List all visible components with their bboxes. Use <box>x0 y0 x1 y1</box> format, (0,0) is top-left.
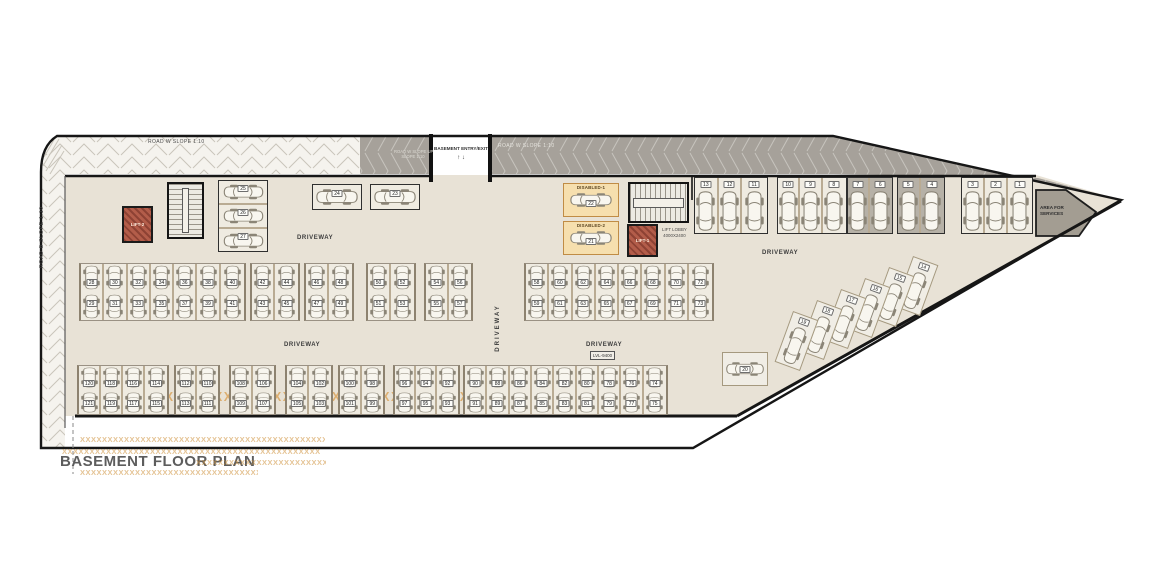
parking-space-number: 66 <box>624 279 635 286</box>
parking-space-number: 87 <box>514 400 525 407</box>
parking-group: 321 <box>961 177 1033 234</box>
parking-space <box>1008 190 1031 232</box>
parking-space: 23 <box>370 184 420 210</box>
disabled-parking-space: DISABLED-221 <box>563 221 619 255</box>
parking-space-number: 92 <box>442 380 453 387</box>
car-icon <box>779 190 798 232</box>
disabled-label: DISABLED-1 <box>564 185 618 190</box>
parking-space-number: 83 <box>559 400 570 407</box>
parking-space-number: 43 <box>257 300 268 307</box>
parking-space <box>800 190 820 232</box>
parking-column: 3 <box>962 178 985 233</box>
parking-space-number: 22 <box>586 200 597 207</box>
parking-space-number: 96 <box>399 380 410 387</box>
parking-space-number: 78 <box>604 380 615 387</box>
parking-space-number: 95 <box>420 400 431 407</box>
parking-space-number: 36 <box>179 279 190 286</box>
parking-space <box>778 190 798 232</box>
parking-space-number: 7 <box>852 181 863 188</box>
parking-space-number: 50 <box>373 279 384 286</box>
parking-group: 58596061626364656667686970717273 <box>524 263 714 321</box>
parking-space-number: 38 <box>203 279 214 286</box>
parking-group: 252627 <box>218 180 268 252</box>
parking-space: 27 <box>219 229 267 253</box>
parking-space-number: 31 <box>109 300 120 307</box>
parking-space: 20 <box>722 352 768 386</box>
driveway-label: DRIVEWAY <box>297 235 333 241</box>
parking-column: 2 <box>985 178 1008 233</box>
parking-column: 7879 <box>599 366 621 414</box>
parking-group: 50515253 <box>366 263 416 321</box>
parking-space: 26 <box>219 205 267 229</box>
parking-space-number: 33 <box>133 300 144 307</box>
parking-space-number: 105 <box>291 400 303 407</box>
parking-space-number: 9 <box>805 181 816 188</box>
car-icon <box>848 190 867 232</box>
parking-group: 2829303132333435363738394041 <box>79 263 246 321</box>
parking-column: 9899 <box>362 366 384 414</box>
driveway-label: DRIVEWAY <box>495 304 501 351</box>
parking-space-number: 1 <box>1014 181 1025 188</box>
car-icon <box>963 190 982 232</box>
parking-column: 7273 <box>689 264 712 320</box>
parking-column: 7677 <box>621 366 643 414</box>
parking-space-number: 65 <box>601 300 612 307</box>
parking-space <box>848 190 868 232</box>
parking-column: 6465 <box>596 264 619 320</box>
car-icon <box>922 190 941 232</box>
parking-column: 6667 <box>619 264 642 320</box>
parking-column: 116117 <box>123 366 145 414</box>
parking-space <box>719 190 741 232</box>
parking-space-number: 86 <box>514 380 525 387</box>
parking-column: 5657 <box>449 264 472 320</box>
parking-column: 7 <box>848 178 870 233</box>
parking-column: 8485 <box>532 366 554 414</box>
parking-space-number: 60 <box>554 279 565 286</box>
parking-space-number: 69 <box>647 300 658 307</box>
parking-column: 12 <box>719 178 743 233</box>
driveway-label: DRIVEWAY <box>586 342 622 348</box>
parking-space <box>742 190 766 232</box>
parking-space-number: 41 <box>227 300 238 307</box>
parking-column: 4243 <box>252 264 275 320</box>
parking-space-number: 97 <box>399 400 410 407</box>
parking-group: 54 <box>897 177 945 234</box>
parking-column: 100101 <box>340 366 362 414</box>
parking-space-number: 76 <box>626 380 637 387</box>
parking-column: 9 <box>800 178 822 233</box>
parking-space-number: 68 <box>647 279 658 286</box>
parking-space-number: 32 <box>133 279 144 286</box>
car-icon <box>801 190 820 232</box>
parking-space-number: 48 <box>335 279 346 286</box>
parking-space <box>823 190 845 232</box>
parking-space <box>985 190 1006 232</box>
parking-group: 76 <box>847 177 893 234</box>
parking-space-number: 59 <box>531 300 542 307</box>
parking-space <box>898 190 919 232</box>
parking-space-number: 88 <box>492 380 503 387</box>
car-icon <box>871 190 890 232</box>
parking-space-number: 47 <box>311 300 322 307</box>
parking-space-number: 2 <box>990 181 1001 188</box>
parking-space-number: 44 <box>281 279 292 286</box>
watermark-row: XXXXXXXXXXXXXXXXXXXXXXXXXXXXXXXXXXXXXXXX… <box>62 447 320 457</box>
parking-space-number: 62 <box>578 279 589 286</box>
parking-group: 1001019899 <box>338 365 385 415</box>
parking-space-number: 24 <box>332 190 343 197</box>
parking-column: 110111 <box>197 366 218 414</box>
parking-column: 8687 <box>510 366 532 414</box>
parking-column: 9495 <box>416 366 437 414</box>
parking-column: 8081 <box>577 366 599 414</box>
parking-space-number: 104 <box>291 380 303 387</box>
parking-space-number: 115 <box>150 400 162 407</box>
parking-space-number: 20 <box>740 366 751 373</box>
parking-space-number: 102 <box>314 380 326 387</box>
parking-space-number: 116 <box>127 380 139 387</box>
parking-space-number: 99 <box>367 400 378 407</box>
parking-space-number: 107 <box>257 400 269 407</box>
car-icon <box>779 324 809 367</box>
parking-column: 3637 <box>174 264 197 320</box>
parking-space-number: 100 <box>344 380 356 387</box>
parking-column: 5051 <box>368 264 391 320</box>
parking-space-number: 94 <box>420 380 431 387</box>
parking-space-number: 8 <box>828 181 839 188</box>
parking-space-number: 55 <box>431 300 442 307</box>
parking-column: 3435 <box>151 264 174 320</box>
parking-space-number: 121 <box>83 400 95 407</box>
parking-space-number: 117 <box>127 400 139 407</box>
parking-space-number: 72 <box>695 279 706 286</box>
parking-space-number: 120 <box>83 380 95 387</box>
parking-column: 11 <box>742 178 766 233</box>
parking-column: 114115 <box>145 366 167 414</box>
parking-space-number: 81 <box>581 400 592 407</box>
parking-space <box>962 190 983 232</box>
parking-group: 42434445 <box>250 263 300 321</box>
parking-column: 6 <box>870 178 892 233</box>
parking-space-number: 37 <box>179 300 190 307</box>
driveway-label: DRIVEWAY <box>284 342 320 348</box>
parking-space-number: 70 <box>671 279 682 286</box>
parking-group: 909188898687848582838081787976777475 <box>463 365 668 415</box>
parking-column: 3233 <box>128 264 151 320</box>
parking-column: 3031 <box>104 264 127 320</box>
parking-space-car <box>776 323 813 369</box>
parking-space-number: 10 <box>783 181 794 188</box>
parking-column: 5253 <box>391 264 414 320</box>
parking-space-number: 101 <box>344 400 356 407</box>
parking-space-number: 26 <box>238 209 249 216</box>
parking-space-number: 58 <box>531 279 542 286</box>
parking-space-number: 46 <box>311 279 322 286</box>
parking-space-number: 34 <box>156 279 167 286</box>
parking-space-number: 89 <box>492 400 503 407</box>
parking-column: 106107 <box>253 366 275 414</box>
car-icon <box>696 190 715 232</box>
parking-space-number: 51 <box>373 300 384 307</box>
parking-column: 4 <box>921 178 944 233</box>
parking-space: 24 <box>312 184 362 210</box>
parking-space-number: 53 <box>397 300 408 307</box>
car-icon <box>986 190 1005 232</box>
parking-group: 1098 <box>777 177 847 234</box>
parking-column: 9091 <box>465 366 487 414</box>
parking-group: 112113110111 <box>174 365 220 415</box>
parking-space: 25 <box>219 181 267 205</box>
parking-space-number: 54 <box>431 279 442 286</box>
parking-space-number: 114 <box>150 380 162 387</box>
parking-column: 108109 <box>231 366 253 414</box>
parking-space-number: 28 <box>86 279 97 286</box>
parking-space-number: 30 <box>109 279 120 286</box>
parking-space-number: 6 <box>875 181 886 188</box>
parking-column: 10 <box>778 178 800 233</box>
parking-space-number: 106 <box>257 380 269 387</box>
parking-space-number: 57 <box>454 300 465 307</box>
parking-column: 4849 <box>329 264 352 320</box>
parking-column: 8283 <box>554 366 576 414</box>
parking-space-number: 63 <box>578 300 589 307</box>
watermark-row: XXXXXXXXXXXXXXXXXXXXXXXXXXXXXXXXXXXXXXXX… <box>196 458 326 468</box>
parking-space-number: 64 <box>601 279 612 286</box>
parking-column: 6869 <box>642 264 665 320</box>
watermark-row: XXXXXXXXXXXXXXXXXXXXXXXXXXXXXXXXXXXXXXXX… <box>80 435 325 445</box>
parking-column: 9697 <box>395 366 416 414</box>
parking-column: 5859 <box>526 264 549 320</box>
car-icon <box>824 190 843 232</box>
parking-column: 13 <box>695 178 719 233</box>
parking-space-number: 61 <box>554 300 565 307</box>
parking-space-number: 5 <box>903 181 914 188</box>
parking-space-number: 73 <box>695 300 706 307</box>
parking-space-number: 12 <box>724 181 735 188</box>
parking-column: 1 <box>1008 178 1031 233</box>
parking-space-number: 75 <box>649 400 660 407</box>
parking-space-number: 39 <box>203 300 214 307</box>
parking-column: 8889 <box>487 366 509 414</box>
parking-space-number: 82 <box>559 380 570 387</box>
parking-space-number: 77 <box>626 400 637 407</box>
parking-layer: 2829303132333435363738394041424344454647… <box>0 0 1164 582</box>
watermark-row: XXXXXXXXXXXXXXXXXXXXXXXXXXXXXXXXXXXXXXXX… <box>80 468 258 478</box>
parking-group: 969794959293 <box>393 365 460 415</box>
parking-space-number: 103 <box>314 400 326 407</box>
parking-space-number: 56 <box>454 279 465 286</box>
parking-space-number: 27 <box>238 233 249 240</box>
parking-column: 7475 <box>644 366 666 414</box>
parking-space-number: 42 <box>257 279 268 286</box>
parking-space-number: 91 <box>470 400 481 407</box>
parking-column: 4041 <box>221 264 244 320</box>
parking-space-number: 80 <box>581 380 592 387</box>
parking-column: 4445 <box>275 264 298 320</box>
parking-group: 120121118119116117114115 <box>77 365 169 415</box>
parking-column: 112113 <box>176 366 197 414</box>
parking-space-number: 23 <box>390 190 401 197</box>
parking-column: 104105 <box>287 366 309 414</box>
parking-column: 5455 <box>426 264 449 320</box>
level-tag: LVL-9400 <box>590 351 615 360</box>
parking-column: 3839 <box>197 264 220 320</box>
parking-space-number: 40 <box>227 279 238 286</box>
parking-space-number: 98 <box>367 380 378 387</box>
parking-group: 54555657 <box>424 263 473 321</box>
parking-space-number: 110 <box>202 380 214 387</box>
parking-space-number: 71 <box>671 300 682 307</box>
parking-space-number: 79 <box>604 400 615 407</box>
parking-space-number: 29 <box>86 300 97 307</box>
parking-space-number: 52 <box>397 279 408 286</box>
parking-column: 5 <box>898 178 921 233</box>
parking-space-number: 13 <box>700 181 711 188</box>
parking-space-number: 93 <box>442 400 453 407</box>
parking-space-number: 25 <box>238 185 249 192</box>
parking-space-number: 21 <box>586 238 597 245</box>
parking-column: 6263 <box>573 264 596 320</box>
parking-group: 108109106107 <box>229 365 276 415</box>
parking-column: 118119 <box>101 366 123 414</box>
parking-space-number: 4 <box>926 181 937 188</box>
parking-space-number: 11 <box>749 181 760 188</box>
parking-column: 4647 <box>306 264 329 320</box>
car-icon <box>899 190 918 232</box>
parking-space-number: 67 <box>624 300 635 307</box>
parking-space-number: 35 <box>156 300 167 307</box>
disabled-label: DISABLED-2 <box>564 223 618 228</box>
parking-column: 6061 <box>549 264 572 320</box>
parking-space-number: 84 <box>537 380 548 387</box>
parking-space-number: 3 <box>967 181 978 188</box>
parking-column: 9293 <box>437 366 458 414</box>
parking-column: 120121 <box>79 366 101 414</box>
parking-column: 8 <box>823 178 845 233</box>
parking-space-number: 109 <box>235 400 247 407</box>
parking-space-number: 85 <box>537 400 548 407</box>
car-icon <box>1010 190 1029 232</box>
parking-space-number: 113 <box>180 400 192 407</box>
parking-space-number: 111 <box>202 400 214 407</box>
parking-space-number: 108 <box>235 380 247 387</box>
driveway-label: DRIVEWAY <box>762 250 798 256</box>
parking-column: 102103 <box>309 366 331 414</box>
parking-group: 104105102103 <box>285 365 333 415</box>
car-icon <box>720 190 739 232</box>
parking-space-number: 45 <box>281 300 292 307</box>
car-icon <box>745 190 764 232</box>
parking-space-number: 119 <box>105 400 117 407</box>
parking-space <box>870 190 892 232</box>
parking-group: 46474849 <box>304 263 354 321</box>
parking-space-number: 49 <box>335 300 346 307</box>
basement-floor-plan: LIFT-2 LIFT-1 LIFT LOBBY 4000X2400 AREA … <box>0 0 1164 582</box>
parking-column: 2829 <box>81 264 104 320</box>
disabled-parking-space: DISABLED-122 <box>563 183 619 217</box>
parking-space-number: 74 <box>649 380 660 387</box>
parking-space-number: 118 <box>105 380 117 387</box>
parking-column: 7071 <box>666 264 689 320</box>
parking-space-number: 90 <box>470 380 481 387</box>
parking-group: 131211 <box>694 177 768 234</box>
parking-space-number: 112 <box>180 380 192 387</box>
parking-space <box>921 190 944 232</box>
parking-space <box>695 190 717 232</box>
